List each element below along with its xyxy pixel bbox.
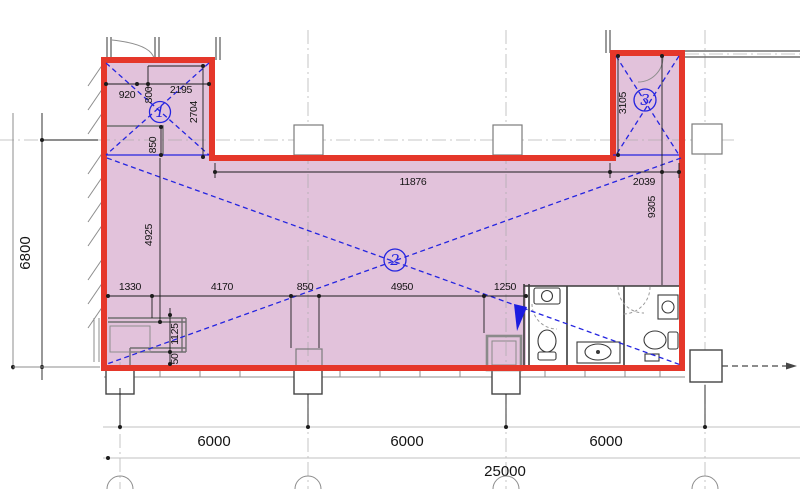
dim-2704: 2704 <box>188 100 200 123</box>
dim-bay3: 6000 <box>589 433 622 450</box>
dim-4925: 4925 <box>143 223 155 246</box>
toilet-right <box>644 331 666 349</box>
grid-bubble-arcs <box>107 476 718 489</box>
dim-total-25000: 25000 <box>484 463 526 480</box>
left-louvers <box>88 64 103 362</box>
door-swing-arc <box>112 40 154 58</box>
dim-1330: 1330 <box>119 281 142 293</box>
zone2-label: 2 <box>389 251 400 269</box>
dim-2195: 2195 <box>170 84 193 96</box>
dim-2039: 2039 <box>633 176 656 188</box>
dim-bay1: 6000 <box>197 433 230 450</box>
arrowhead-icon <box>786 363 797 370</box>
pink-floor-area <box>104 53 682 368</box>
dim-850: 850 <box>297 281 314 293</box>
floor-plan-canvas: 1 2 3 920 2195 800 2704 850 11876 2039 3… <box>0 0 800 489</box>
bottom-wall-ticks <box>160 371 660 377</box>
right-reference-arrow <box>722 363 797 370</box>
dim-1125: 1125 <box>169 323 181 345</box>
zone1-label: 1 <box>155 103 165 121</box>
dim-bay2: 6000 <box>390 433 423 450</box>
dim-4950: 4950 <box>391 281 414 293</box>
dim-920: 920 <box>119 89 136 101</box>
bottom-grid-dimensions: 6000 6000 6000 25000 <box>103 385 800 489</box>
dim-11876: 11876 <box>400 176 427 188</box>
dim-3105: 3105 <box>617 91 629 114</box>
dim-850-z1: 850 <box>147 136 159 153</box>
dim-50: 50 <box>169 353 181 365</box>
dim-4170: 4170 <box>211 281 234 293</box>
floor-plan-page: 1 2 3 920 2195 800 2704 850 11876 2039 3… <box>0 0 800 489</box>
dim-6800: 6800 <box>17 236 34 269</box>
left-grid-dimension: 6800 <box>11 113 100 380</box>
zone3-label: 3 <box>640 91 650 109</box>
dim-9305: 9305 <box>646 195 658 218</box>
toilet-left <box>538 330 556 352</box>
dim-800: 800 <box>143 86 155 103</box>
dim-1250: 1250 <box>494 281 517 293</box>
